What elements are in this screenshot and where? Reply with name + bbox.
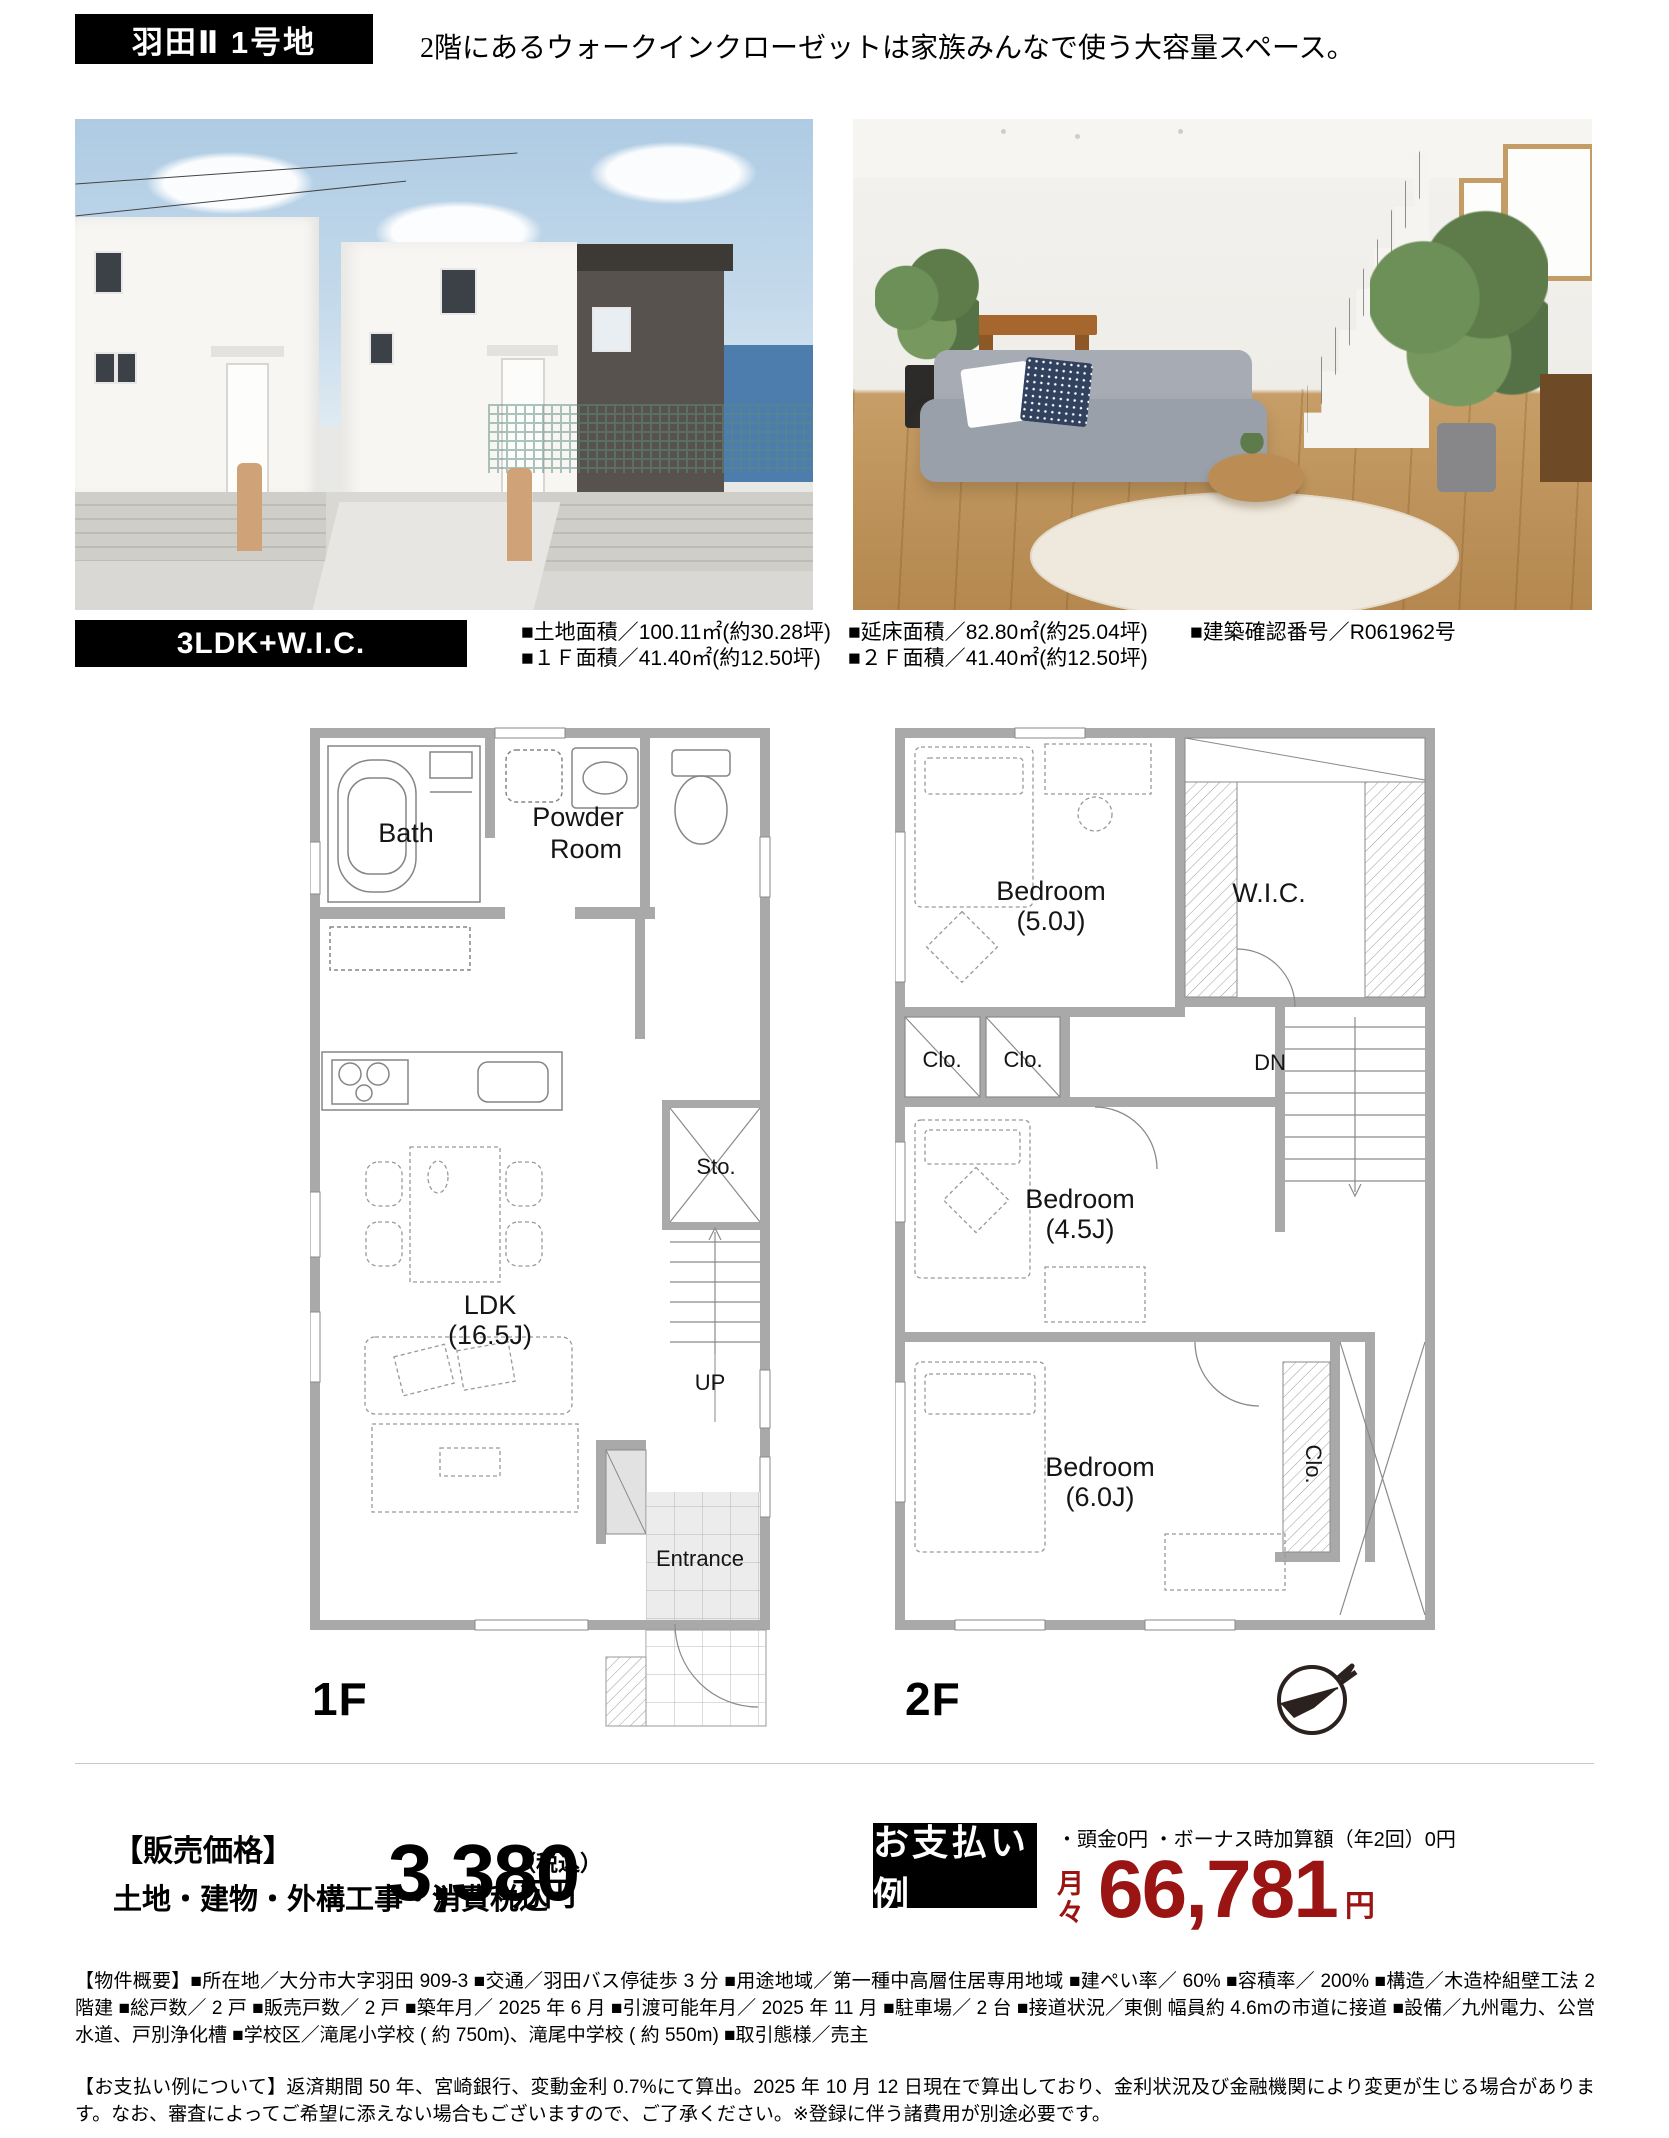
bedroom1-furniture — [915, 744, 1151, 982]
closet3-label: Clo. — [1301, 1444, 1326, 1483]
monthly-payment: 月々 66,781 円 — [1057, 1849, 1375, 1931]
bedroom2-label-1: Bedroom — [1025, 1184, 1135, 1214]
mailbox-post — [507, 468, 532, 561]
spec-list: ■土地面積／100.11㎡(約30.28坪) ■延床面積／82.80㎡(約25.… — [521, 620, 1456, 671]
plan-type-badge: 3LDK+W.I.C. — [75, 620, 467, 667]
monthly-amount: 66,781 — [1098, 1849, 1337, 1931]
price-unit: 万円 — [512, 1869, 576, 1915]
kitchen-fixtures — [322, 927, 562, 1110]
bedroom3-label-1: Bedroom — [1045, 1452, 1155, 1482]
closet1-label: Clo. — [922, 1047, 961, 1072]
wic-closet — [1185, 738, 1425, 1007]
sideboard — [1540, 374, 1592, 482]
header-tagline: 2階にあるウォークインクローゼットは家族みんなで使う大容量スペース。 — [420, 26, 1355, 66]
window — [94, 352, 115, 384]
entrance-area — [606, 1450, 766, 1726]
mailbox-post — [237, 463, 262, 551]
plan-type-text: 3LDK+W.I.C. — [177, 627, 366, 661]
compass-icon — [1268, 1652, 1360, 1744]
floor-label-1f: 1F — [312, 1672, 368, 1726]
dining-table — [971, 315, 1097, 335]
bedroom2-furniture — [915, 1107, 1157, 1322]
floorplan-2f: Bedroom (5.0J) W.I.C. Clo. Clo. DN Bedro… — [895, 722, 1445, 1752]
cloud — [533, 129, 813, 217]
door-canopy — [211, 346, 284, 357]
stairs-2f — [1285, 1017, 1425, 1196]
block-wall — [75, 492, 326, 561]
compass-north-icon — [1338, 1666, 1356, 1682]
entrance-label: Entrance — [656, 1546, 744, 1571]
monthly-label: 月々 — [1057, 1870, 1084, 1927]
lot-name-text: 羽田Ⅱ 1号地 — [132, 17, 316, 62]
payment-example-badge: お支払い例 — [873, 1823, 1037, 1908]
labels-2f: Bedroom (5.0J) W.I.C. Clo. Clo. DN Bedro… — [922, 876, 1326, 1512]
flyer-page: 羽田Ⅱ 1号地 2階にあるウォークインクローゼットは家族みんなで使う大容量スペー… — [0, 0, 1669, 2138]
up-label: UP — [695, 1370, 726, 1395]
bedroom3-label-2: (6.0J) — [1065, 1482, 1134, 1512]
monthly-unit: 円 — [1345, 1881, 1375, 1925]
bedroom1-label-1: Bedroom — [996, 876, 1106, 906]
living-furniture — [365, 1337, 578, 1512]
ldk-label-1: LDK — [464, 1290, 517, 1320]
closet2-label: Clo. — [1003, 1047, 1042, 1072]
window — [592, 307, 631, 352]
price-heading: 【販売価格】 — [113, 1826, 293, 1870]
ceiling — [853, 119, 1592, 178]
toilet-fixtures — [672, 750, 730, 844]
spec-permit: ■建築確認番号／R061962号 — [1190, 620, 1456, 645]
table-plant — [1237, 433, 1267, 462]
powder-room-fixtures — [506, 748, 638, 808]
bath-label: Bath — [378, 818, 434, 848]
storage-label: Sto. — [696, 1154, 735, 1179]
powder-room-label-1: Powder — [532, 802, 624, 832]
floorplan-1f: Bath Powder Room Sto. LDK (16.5J) UP Ent… — [310, 722, 780, 1752]
divider-line — [75, 1763, 1594, 1764]
window — [94, 251, 122, 294]
plant-pot — [1437, 423, 1496, 492]
downlight — [1178, 129, 1183, 134]
mesh-fence — [488, 404, 813, 473]
floor-label-2f: 2F — [905, 1672, 961, 1726]
exterior-photo — [75, 119, 813, 610]
dining-set — [366, 1147, 542, 1282]
payment-example-text: お支払い例 — [873, 1814, 1037, 1918]
wic-label: W.I.C. — [1232, 878, 1306, 908]
plant-foliage — [1370, 207, 1547, 433]
round-rug — [1030, 492, 1459, 610]
door-canopy — [487, 345, 558, 356]
bedroom1-label-2: (5.0J) — [1016, 906, 1085, 936]
interior-photo — [853, 119, 1592, 610]
sofa-cushion-pattern — [1020, 356, 1093, 426]
white-house-left — [75, 217, 319, 497]
downlight — [1001, 129, 1006, 134]
spec-land: ■土地面積／100.11㎡(約30.28坪) — [521, 620, 848, 645]
lot-name-badge: 羽田Ⅱ 1号地 — [75, 14, 373, 64]
ldk-label-2: (16.5J) — [448, 1320, 532, 1350]
walls-2f — [895, 728, 1435, 1630]
spec-1f-area: ■１Ｆ面積／41.40㎡(約12.50坪) — [521, 646, 848, 671]
powder-room-label-2: Room — [550, 834, 622, 864]
window — [369, 332, 394, 365]
bedroom2-label-2: (4.5J) — [1045, 1214, 1114, 1244]
window — [116, 352, 137, 384]
payment-note: 【お支払い例について】返済期間 50 年、宮崎銀行、変動金利 0.7%にて算出。… — [75, 2074, 1595, 2128]
window — [440, 268, 477, 314]
block-wall — [533, 492, 813, 571]
property-overview: 【物件概要】■所在地／大分市大字羽田 909-3 ■交通／羽田バス停徒歩 3 分… — [75, 1968, 1595, 2049]
spec-2f-area: ■２Ｆ面積／41.40㎡(約12.50坪) — [848, 646, 1190, 671]
down-label: DN — [1254, 1050, 1286, 1075]
downlight — [1075, 134, 1080, 139]
spec-total-floor: ■延床面積／82.80㎡(約25.04坪) — [848, 620, 1190, 645]
